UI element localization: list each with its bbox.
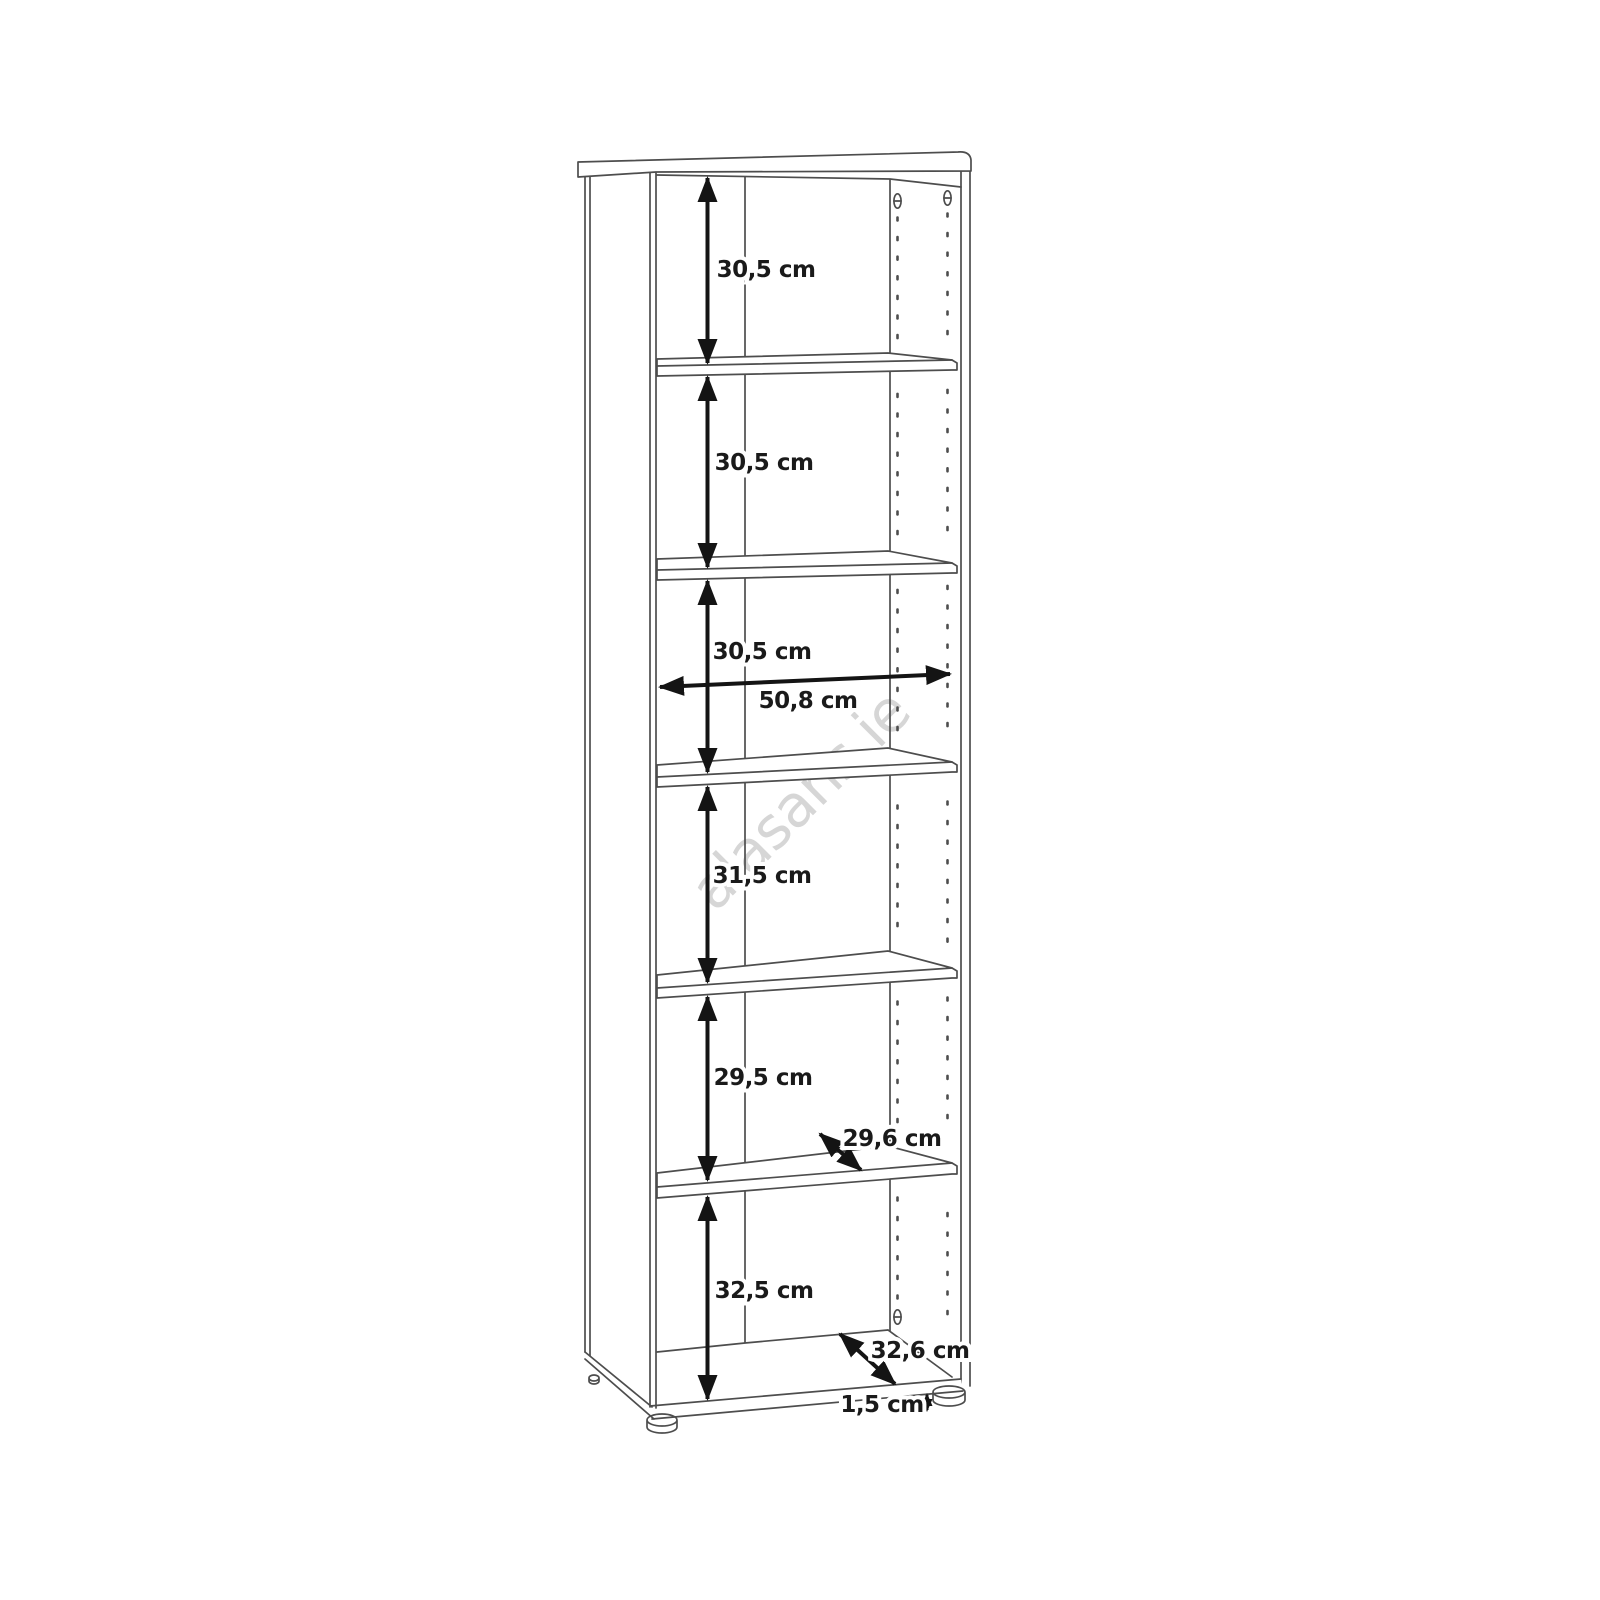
shelf-pin-hole	[896, 706, 899, 712]
shelf-pin-hole	[896, 471, 899, 477]
shelf-pin-hole	[896, 216, 899, 222]
shelf	[657, 353, 957, 376]
shelf-pin-hole	[896, 589, 899, 595]
shelf-pin-hole	[896, 275, 899, 281]
shelf-pin-hole	[896, 608, 899, 614]
ceiling-edge	[657, 175, 961, 187]
shelf	[657, 951, 957, 998]
shelf-pin-hole	[896, 255, 899, 261]
shelf-pin-hole	[946, 918, 949, 924]
shelf-pin-hole	[946, 1290, 949, 1296]
shelf-pin-hole	[946, 232, 949, 238]
shelf-pin-hole	[946, 879, 949, 885]
shelf-pin-hole	[896, 726, 899, 732]
shelf-pin-hole	[896, 1275, 899, 1281]
shelf-pin-hole	[946, 1251, 949, 1257]
foot-back-left	[589, 1375, 599, 1384]
dimension-label: 29,5 cm	[714, 1065, 813, 1091]
shelf-pin-hole	[946, 722, 949, 728]
dimension-label: 30,5 cm	[717, 257, 816, 283]
shelf-pin-hole	[896, 667, 899, 673]
dimension-label: 30,5 cm	[713, 639, 812, 665]
shelf-pin-hole	[896, 843, 899, 849]
left-panel-bottom-edge	[585, 1352, 652, 1407]
shelf-pin-hole	[946, 702, 949, 708]
shelf-pin-hole	[946, 1075, 949, 1081]
shelf-pin-hole	[896, 1020, 899, 1026]
shelf-pin-hole	[946, 506, 949, 512]
shelf-pin-hole	[946, 1055, 949, 1061]
shelf-pin-hole	[896, 1255, 899, 1261]
shelf-pin-hole	[946, 1114, 949, 1120]
shelf-pin-hole	[946, 389, 949, 395]
shelf-pin-hole	[946, 330, 949, 336]
technical-drawing-page: alasans.ie	[0, 0, 1600, 1600]
shelf-pin-hole	[896, 491, 899, 497]
shelf-pin-hole	[946, 291, 949, 297]
shelf-pin-hole	[896, 1098, 899, 1104]
shelf-pin-hole	[896, 1039, 899, 1045]
shelf-pin-hole	[946, 526, 949, 532]
shelf-pin-hole	[896, 804, 899, 810]
dimension-label: 31,5 cm	[713, 863, 812, 889]
shelf-pin-hole	[946, 663, 949, 669]
shelf-pin-hole	[946, 428, 949, 434]
shelf-pin-hole	[896, 314, 899, 320]
shelf-pin-hole	[946, 859, 949, 865]
shelf-pin-hole	[946, 839, 949, 845]
shelf-pin-hole	[896, 295, 899, 301]
shelf-pin-hole	[946, 251, 949, 257]
shelf-pin-hole	[946, 937, 949, 943]
shelf-pin-hole	[946, 310, 949, 316]
shelf-pin-hole	[946, 585, 949, 591]
dimension-label: 32,5 cm	[715, 1278, 814, 1304]
shelf-pin-hole	[896, 1059, 899, 1065]
dimension-label: 29,6 cm	[843, 1126, 942, 1152]
shelf-pin-hole	[946, 408, 949, 414]
shelf-pin-hole	[946, 212, 949, 218]
shelf-pin-hole	[946, 487, 949, 493]
left-plinth-edge	[585, 1359, 654, 1419]
shelf-pin-hole	[896, 510, 899, 516]
shelf-pin-hole	[896, 1196, 899, 1202]
shelf-pin-hole	[896, 393, 899, 399]
keyhole-fitting-icon	[944, 191, 951, 205]
shelf-pin-hole	[896, 863, 899, 869]
shelf-pin-hole	[946, 898, 949, 904]
shelf-pin-hole	[896, 1216, 899, 1222]
shelf-pin-hole	[946, 996, 949, 1002]
shelf-pin-hole	[946, 683, 949, 689]
shelf-pin-hole	[896, 824, 899, 830]
dimension-arrow-inner-width	[660, 674, 950, 687]
dimension-label: 50,8 cm	[759, 688, 858, 714]
shelf-pin-hole	[896, 236, 899, 242]
dimension-label: 1,5 cm	[840, 1392, 923, 1418]
shelf-pin-hole	[946, 467, 949, 473]
shelf-pin-hole	[896, 628, 899, 634]
shelf	[657, 551, 957, 580]
shelf-pin-hole	[946, 1094, 949, 1100]
shelf-pin-hole	[896, 530, 899, 536]
shelf-pin-hole	[946, 1271, 949, 1277]
shelf-pin-hole	[896, 432, 899, 438]
shelf-pin-hole	[896, 922, 899, 928]
shelf-pin-hole	[946, 643, 949, 649]
shelf-pin-hole	[896, 687, 899, 693]
top-panel	[578, 152, 971, 177]
shelf-pin-hole	[896, 902, 899, 908]
shelf-pin-hole	[946, 1016, 949, 1022]
shelf-pin-hole	[896, 451, 899, 457]
shelf-pin-hole	[896, 1000, 899, 1006]
dimension-label: 30,5 cm	[715, 450, 814, 476]
keyhole-fitting-icon	[894, 1310, 901, 1324]
shelf-pin-hole	[946, 820, 949, 826]
shelf-pin-hole	[946, 604, 949, 610]
shelf-pin-hole	[946, 1035, 949, 1041]
shelf-pin-hole	[946, 447, 949, 453]
shelf-pin-hole	[896, 412, 899, 418]
shelf-pin-hole	[946, 1212, 949, 1218]
shelf	[657, 1146, 957, 1198]
shelf-pin-hole	[896, 1118, 899, 1124]
shelf-pin-hole	[946, 271, 949, 277]
shelf-pin-hole	[896, 1294, 899, 1300]
shelf-pin-hole	[946, 800, 949, 806]
shelf-pin-hole	[946, 1231, 949, 1237]
shelf-pin-hole	[896, 1235, 899, 1241]
keyhole-fitting-icon	[894, 194, 901, 208]
dimension-label: 32,6 cm	[871, 1338, 970, 1364]
shelf-pin-hole	[946, 1310, 949, 1316]
shelf-pin-hole	[896, 1079, 899, 1085]
shelf-pin-hole	[896, 647, 899, 653]
shelf-pin-hole	[896, 883, 899, 889]
shelf-pin-hole	[946, 624, 949, 630]
bookcase-dimension-drawing: alasans.ie	[0, 0, 1600, 1600]
shelf-pin-hole	[896, 334, 899, 340]
